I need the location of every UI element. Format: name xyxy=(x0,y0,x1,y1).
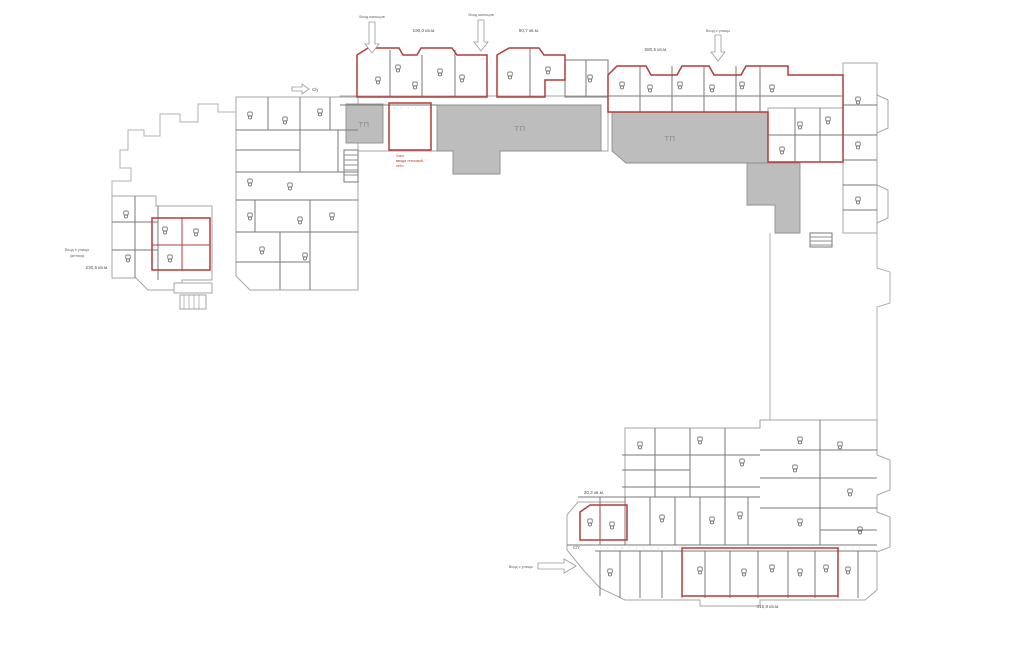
area-label-left-block: 230,5 кв.м. xyxy=(86,265,109,270)
entrance-arrow-bottom xyxy=(538,559,576,573)
wc-fixture-icon xyxy=(546,67,550,74)
floor-plan: ТП ТП ТП 190,0 кв.м. 90,7 кв.м. 580,5 кв… xyxy=(0,0,1024,651)
wc-fixture-icon xyxy=(413,82,417,89)
left-wing-mass xyxy=(236,97,358,290)
wc-fixture-icon xyxy=(438,69,442,76)
wc-label-top: С/у xyxy=(312,87,319,92)
area-label-bottom-strip: 315,9 кв.м. xyxy=(757,604,780,609)
tp-room-2-extension-fill xyxy=(747,163,800,233)
tp-room-2-fill xyxy=(612,112,768,163)
itp-note-line-2: ввода тепловой xyxy=(396,159,423,163)
entrance-label-left-1: Вход с улицы xyxy=(65,247,89,252)
entrance-arrow-top-right xyxy=(711,35,725,61)
entrance-arrow-top-2 xyxy=(474,20,488,51)
right-bay-2 xyxy=(877,185,888,223)
commercial-unit-90 xyxy=(497,48,565,97)
area-label-top-right: 580,5 кв.м. xyxy=(645,47,668,52)
wc-fixture-icon xyxy=(508,72,512,79)
wc-fixture-icon xyxy=(460,75,464,82)
area-label-top-mid: 90,7 кв.м. xyxy=(519,28,539,33)
left-block-porch-1 xyxy=(174,283,212,293)
tp-label-2: ТП xyxy=(665,134,676,143)
right-wing-outer-wall xyxy=(877,233,890,420)
entrance-label-left-2: (аптека) xyxy=(70,253,85,258)
tp-label-1: ТП xyxy=(515,124,526,133)
left-stepped-contour xyxy=(112,104,236,196)
entrance-arrow-wc-top xyxy=(292,84,309,94)
floor-plan-page: ТП ТП ТП 190,0 кв.м. 90,7 кв.м. 580,5 кв… xyxy=(0,0,1024,651)
tp-label-small: ТП xyxy=(359,120,370,129)
area-label-top-left: 190,0 кв.м. xyxy=(413,28,436,33)
right-top-mass xyxy=(608,66,843,112)
tp-room-1-fill xyxy=(437,105,601,174)
left-block-mass xyxy=(112,196,212,290)
entrance-label-top-2: Вход жильцов xyxy=(468,12,493,17)
entrance-label-top-1: Вход жильцов xyxy=(359,14,384,19)
right-bay-1 xyxy=(877,95,888,133)
entrance-label-bottom: Вход с улицы xyxy=(509,564,533,569)
right-column-mass xyxy=(843,63,877,233)
itp-note-line-3: сети xyxy=(396,164,404,168)
area-label-bottom-small: 30,3 кв.м. xyxy=(584,490,604,495)
wc-fixture-icon xyxy=(588,75,592,82)
wc-fixture-icon xyxy=(376,77,380,84)
wc-label-bottom: С/У xyxy=(573,545,580,550)
wc-fixture-icon xyxy=(396,65,400,72)
itp-note-line-1: Узел xyxy=(396,154,404,158)
entrance-label-top-right: Вход с улицы xyxy=(706,28,730,33)
